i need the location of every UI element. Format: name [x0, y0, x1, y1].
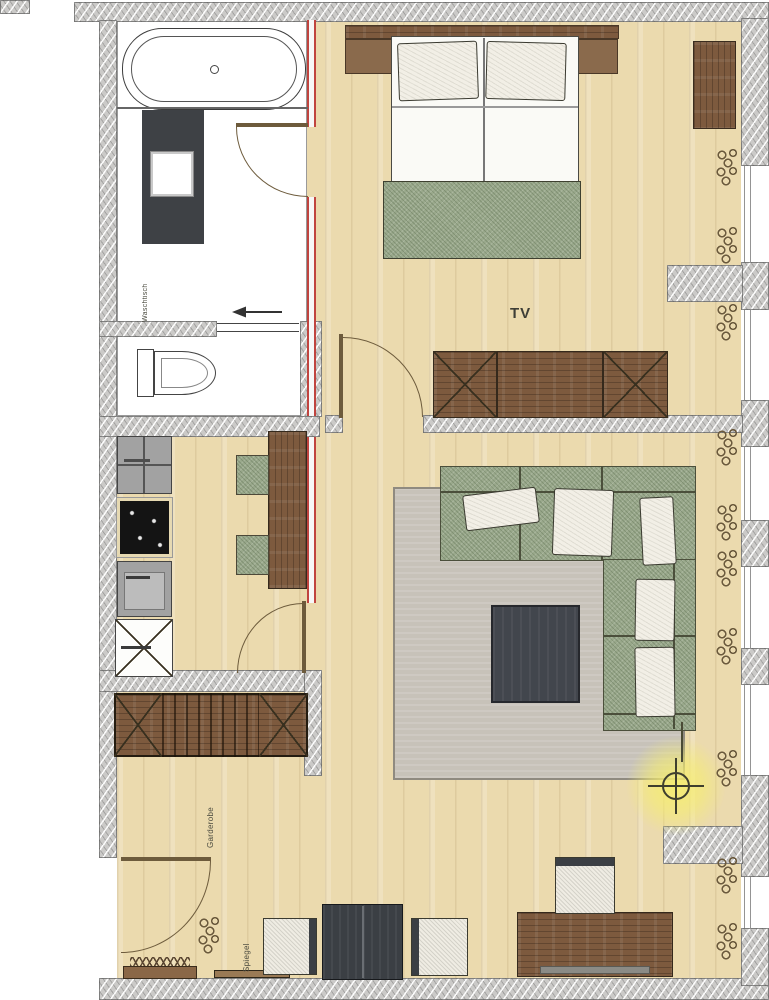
oven-label-smudge	[126, 576, 150, 579]
mirror-label: Spiegel	[242, 922, 251, 972]
sideboard-divider	[602, 352, 604, 417]
desk-chair	[555, 857, 615, 914]
nightstand-left	[345, 39, 392, 74]
left-arrow-icon	[232, 305, 284, 319]
fridge-divider-h	[118, 464, 171, 466]
wc-sliding-door	[217, 323, 299, 332]
sideboard-x-left	[433, 351, 497, 418]
dresser-divider	[362, 906, 364, 978]
floor-plan: Waschtisch Garderobe Spiegel TV	[0, 0, 769, 1000]
closet-rail-section	[162, 693, 259, 757]
washstand-label: Waschtisch	[142, 236, 149, 322]
radiator-icon	[714, 148, 741, 188]
tv-label: TV	[510, 305, 556, 325]
wardrobe-label: Garderobe	[206, 770, 215, 848]
tub-deck-edge	[117, 107, 308, 109]
fridge-label-smudge	[124, 459, 150, 462]
radiator-icon	[714, 549, 741, 589]
pier-right-5	[741, 648, 769, 685]
pier-right-2	[741, 262, 769, 310]
ceiling-light-icon	[648, 758, 704, 814]
glass-partition	[307, 20, 316, 127]
pier-right-7	[741, 928, 769, 986]
sink-label-smudge	[121, 646, 151, 649]
sofa-pillow	[639, 496, 677, 566]
radiator-icon	[714, 303, 741, 343]
bar-counter	[268, 431, 307, 589]
glass-partition	[307, 437, 316, 603]
radiator-icon	[714, 627, 741, 667]
pier-right-3	[741, 400, 769, 447]
closet-section-left	[114, 693, 162, 757]
wall-bottom	[99, 978, 769, 1000]
sofa-pillow	[552, 488, 614, 557]
bathtub-drain	[210, 65, 219, 74]
bed-pillow	[485, 41, 566, 101]
bed-fold-line	[392, 106, 578, 108]
doormat-bristles	[130, 957, 190, 966]
bar-stool	[236, 455, 269, 495]
lamp-cord	[681, 722, 683, 762]
closet-section-right	[259, 693, 308, 757]
wall-bath-wc	[99, 321, 217, 337]
bed-pillow	[397, 41, 479, 102]
bar-stool	[236, 535, 269, 575]
radiator-icon	[714, 922, 741, 962]
radiator-icon	[714, 503, 741, 543]
window	[744, 447, 751, 520]
cooktop	[120, 501, 169, 554]
coffee-table	[491, 605, 580, 703]
chair	[411, 918, 468, 976]
sofa-pillow	[634, 647, 675, 718]
wall-stub-bedroom	[667, 265, 743, 302]
sideboard-x-right	[603, 351, 668, 418]
radiator-icon	[714, 226, 741, 266]
washbasin	[151, 152, 193, 196]
doormat	[123, 966, 197, 979]
window	[744, 685, 751, 775]
window	[744, 310, 751, 400]
sideboard-divider	[496, 352, 498, 417]
bed-center-line	[483, 38, 485, 182]
radiator-icon	[714, 856, 741, 896]
bed-blanket	[383, 181, 581, 259]
chair	[263, 918, 317, 975]
window	[744, 877, 751, 928]
wall-top-left-stub	[0, 0, 30, 14]
sofa-pillow	[634, 579, 675, 642]
radiator-icon	[714, 428, 741, 468]
pier-right-1	[741, 18, 769, 166]
wall-top	[74, 2, 769, 22]
radiator-icon	[196, 916, 223, 956]
pier-right-6	[741, 775, 769, 877]
toilet-tank	[137, 349, 154, 397]
pier-right-4	[741, 520, 769, 567]
window	[744, 567, 751, 648]
glass-partition	[307, 197, 316, 416]
radiator-icon	[714, 749, 741, 789]
bedroom-wardrobe	[693, 41, 736, 129]
window	[744, 166, 751, 262]
desk-front-strip	[540, 966, 650, 974]
